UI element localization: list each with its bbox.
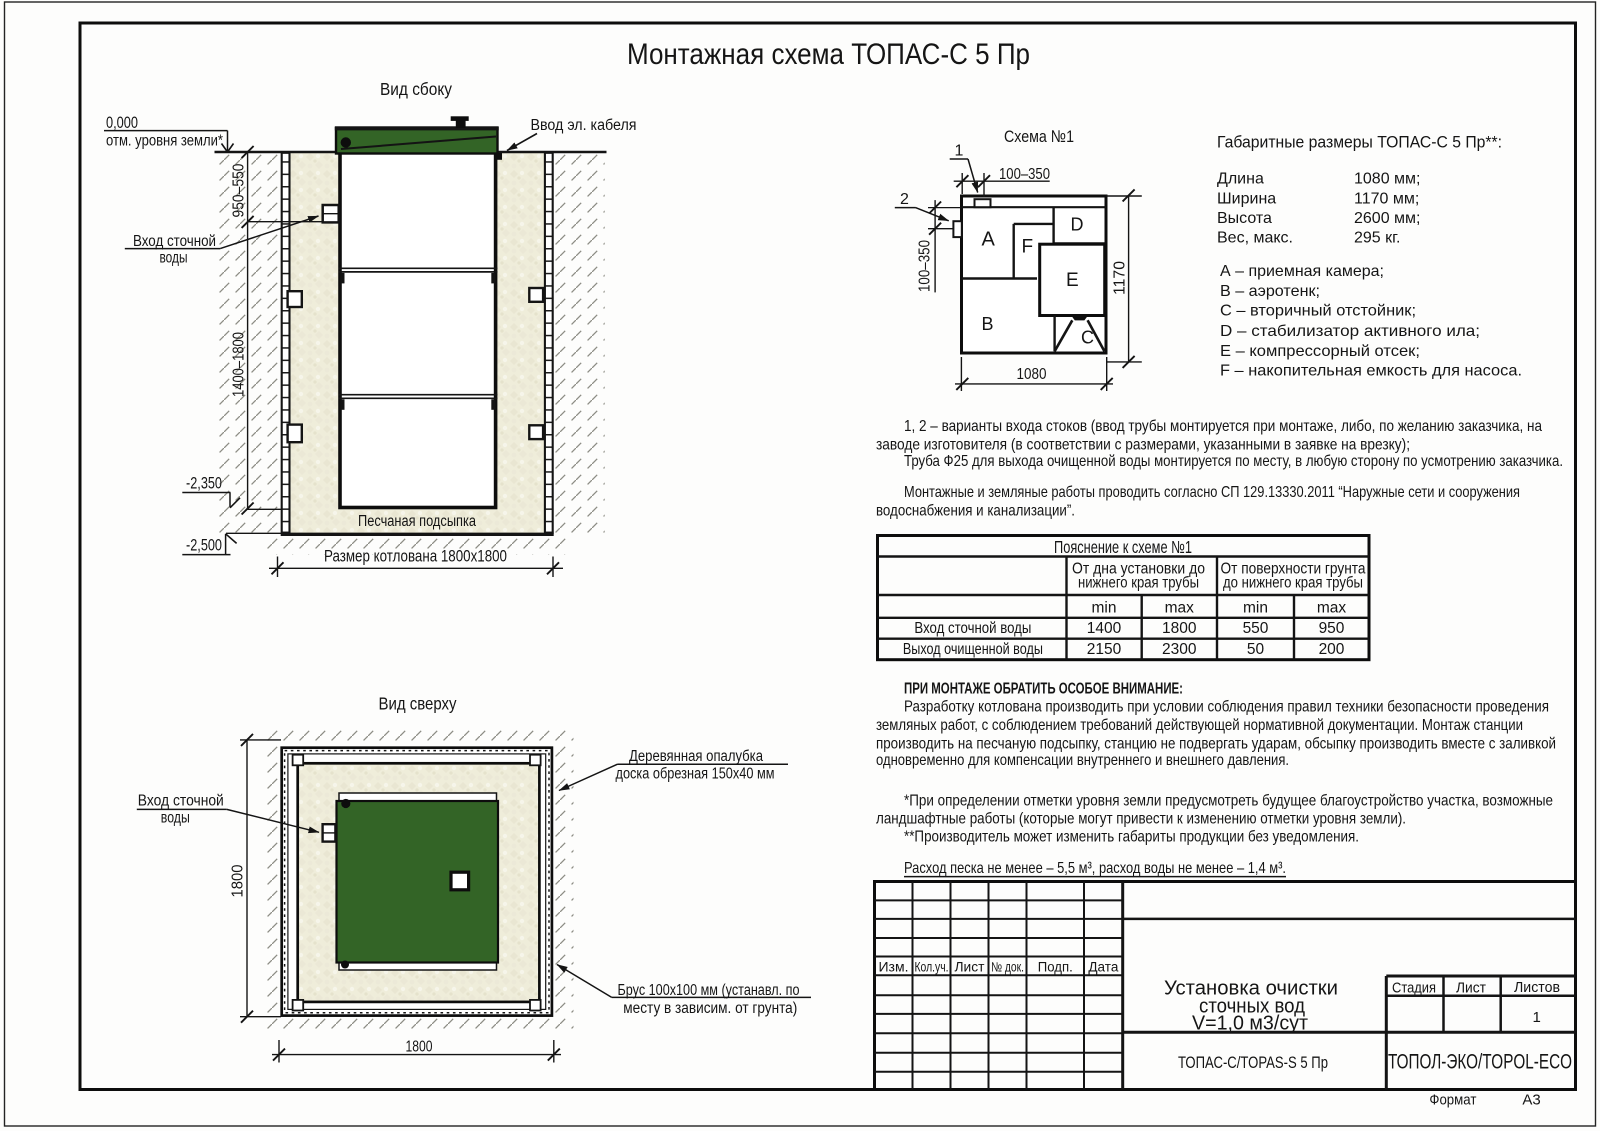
svg-text:Вход сточной: Вход сточной (133, 233, 216, 250)
svg-text:Стадия: Стадия (1392, 980, 1436, 997)
svg-text:Песчаная подсыпка: Песчаная подсыпка (358, 513, 476, 530)
svg-text:1: 1 (955, 143, 964, 160)
svg-text:1170: 1170 (1112, 261, 1129, 295)
svg-text:1400–1800: 1400–1800 (231, 332, 248, 397)
svg-text:производить на песчаную подсып: производить на песчаную подсыпку, станци… (876, 736, 1556, 753)
svg-text:1800: 1800 (230, 864, 247, 897)
svg-text:550: 550 (1243, 620, 1269, 637)
svg-text:295 кг.: 295 кг. (1354, 230, 1400, 247)
svg-text:200: 200 (1319, 641, 1345, 658)
svg-text:A: A (982, 229, 996, 251)
svg-text:950: 950 (1319, 620, 1345, 637)
svg-text:ТОПОЛ-ЭКО/TOPOL-ECO: ТОПОЛ-ЭКО/TOPOL-ECO (1388, 1051, 1572, 1074)
svg-text:Листов: Листов (1514, 979, 1560, 996)
svg-text:1800: 1800 (1162, 620, 1197, 637)
svg-text:ландшафтные работы (которые мо: ландшафтные работы (которые могут привес… (876, 811, 1406, 828)
svg-text:Схема №1: Схема №1 (1004, 127, 1074, 146)
svg-text:доска обрезная 150х40 мм: доска обрезная 150х40 мм (616, 766, 775, 783)
svg-text:F: F (1022, 237, 1034, 258)
svg-text:1080 мм;: 1080 мм; (1354, 171, 1420, 188)
svg-text:2300: 2300 (1162, 641, 1197, 658)
svg-text:Лист: Лист (955, 960, 985, 975)
svg-text:2600 мм;: 2600 мм; (1354, 210, 1420, 227)
svg-text:Высота: Высота (1217, 210, 1272, 227)
svg-text:Брус 100х100 мм (устанавл. по: Брус 100х100 мм (устанавл. по (618, 982, 800, 999)
svg-text:Ввод эл. кабеля: Ввод эл. кабеля (531, 117, 637, 134)
svg-text:1170 мм;: 1170 мм; (1354, 191, 1419, 208)
svg-text:Лист: Лист (1456, 980, 1486, 997)
svg-text:Деревянная опалубка: Деревянная опалубка (629, 748, 763, 765)
svg-text:V=1,0 м3/сут: V=1,0 м3/сут (1192, 1013, 1308, 1035)
svg-text:А – приемная камера;: А – приемная камера; (1220, 263, 1384, 280)
svg-text:Дата: Дата (1088, 960, 1118, 975)
svg-text:Подп.: Подп. (1038, 960, 1073, 975)
svg-text:Е – компрессорный отсек;: Е – компрессорный отсек; (1220, 343, 1420, 360)
svg-text:Длина: Длина (1217, 171, 1264, 188)
svg-text:100–350: 100–350 (999, 166, 1050, 183)
svg-text:В – аэротенк;: В – аэротенк; (1220, 283, 1320, 300)
svg-text:100–350: 100–350 (917, 240, 934, 292)
svg-text:B: B (982, 314, 994, 334)
svg-text:Габаритные размеры ТОПАС-С 5 П: Габаритные размеры ТОПАС-С 5 Пр**: (1217, 133, 1502, 151)
svg-text:Вид сбоку: Вид сбоку (380, 79, 452, 99)
svg-text:1800: 1800 (406, 1039, 433, 1056)
svg-text:Вход сточной воды: Вход сточной воды (914, 620, 1031, 637)
svg-text:Труба Ф25 для выхода очищенной: Труба Ф25 для выхода очищенной воды монт… (904, 453, 1563, 470)
svg-text:А3: А3 (1522, 1092, 1540, 1109)
svg-text:Изм.: Изм. (879, 960, 909, 975)
svg-text:Разработку котлована производи: Разработку котлована производить при усл… (904, 699, 1549, 716)
svg-text:водоснабжения и канализации”.: водоснабжения и канализации”. (876, 503, 1075, 520)
svg-text:1: 1 (1533, 1009, 1541, 1026)
svg-text:2150: 2150 (1087, 641, 1122, 658)
svg-text:отм. уровня земли*: отм. уровня земли* (106, 133, 223, 150)
svg-text:Выход очищенной воды: Выход очищенной воды (903, 641, 1043, 658)
svg-text:1400: 1400 (1087, 620, 1122, 637)
svg-text:ТОПАС-С/TOPAS-S 5 Пр: ТОПАС-С/TOPAS-S 5 Пр (1178, 1054, 1328, 1072)
svg-text:D: D (1071, 215, 1084, 235)
svg-text:заводе изготовителя (в соответ: заводе изготовителя (в соответствии с ра… (876, 437, 1410, 454)
svg-text:2: 2 (900, 191, 909, 208)
svg-text:С – вторичный отстойник;: С – вторичный отстойник; (1220, 303, 1416, 320)
svg-text:земляных работ, с соблюдением: земляных работ, с соблюдением требований… (876, 717, 1523, 734)
svg-text:Монтажная схема ТОПАС-С 5 Пр: Монтажная схема ТОПАС-С 5 Пр (627, 38, 1030, 71)
svg-text:до нижнего края трубы: до нижнего края трубы (1223, 575, 1363, 592)
svg-text:Кол.уч.: Кол.уч. (915, 960, 949, 975)
svg-text:одновременно для компенсации в: одновременно для компенсации внутреннего… (876, 752, 1289, 769)
svg-text:Пояснение к схеме №1: Пояснение к схеме №1 (1054, 537, 1192, 557)
svg-text:**Производитель может изменить: **Производитель может изменить габариты … (904, 829, 1359, 846)
svg-text:C: C (1081, 328, 1094, 348)
svg-text:воды: воды (160, 250, 188, 267)
svg-text:F – накопительная емкость для: F – накопительная емкость для насоса. (1220, 363, 1522, 380)
svg-text:min: min (1092, 600, 1117, 617)
svg-text:1080: 1080 (1017, 366, 1047, 383)
svg-text:Формат: Формат (1429, 1092, 1476, 1109)
svg-text:1, 2 – варианты входа стоков: 1, 2 – варианты входа стоков (ввод трубы… (904, 418, 1542, 435)
svg-text:№ док.: № док. (991, 960, 1024, 975)
svg-text:Размер котлована 1800х1800: Размер котлована 1800х1800 (324, 548, 507, 566)
svg-text:Вход сточной: Вход сточной (138, 793, 224, 810)
svg-text:50: 50 (1247, 641, 1265, 658)
svg-text:max: max (1317, 600, 1347, 617)
svg-text:950–550: 950–550 (231, 163, 248, 217)
svg-text:Расход песка не менее – 5,5 м³: Расход песка не менее – 5,5 м³, расход в… (904, 860, 1286, 877)
svg-text:-2,350: -2,350 (186, 475, 222, 493)
svg-text:D – стабилизатор активного ила: D – стабилизатор активного ила; (1220, 323, 1480, 340)
svg-text:Вес, макс.: Вес, макс. (1217, 230, 1293, 247)
svg-text:Монтажные и земляные работы пр: Монтажные и земляные работы проводить со… (904, 484, 1520, 501)
svg-text:0,000: 0,000 (106, 114, 138, 132)
svg-text:E: E (1066, 270, 1079, 291)
svg-text:воды: воды (161, 810, 190, 827)
svg-text:ПРИ МОНТАЖЕ ОБРАТИТЬ ОСОБОЕ ВН: ПРИ МОНТАЖЕ ОБРАТИТЬ ОСОБОЕ ВНИМАНИЕ: (904, 680, 1183, 697)
svg-text:Вид сверху: Вид сверху (379, 694, 457, 714)
svg-text:месту в зависим. от грунта): месту в зависим. от грунта) (623, 1000, 797, 1017)
svg-text:min: min (1243, 600, 1268, 617)
svg-text:нижнего края трубы: нижнего края трубы (1078, 575, 1199, 592)
svg-text:*При определении отметки уровн: *При определении отметки уровня земли пр… (904, 793, 1553, 810)
svg-text:max: max (1165, 600, 1195, 617)
svg-text:-2,500: -2,500 (186, 537, 222, 555)
svg-text:Ширина: Ширина (1217, 191, 1276, 208)
